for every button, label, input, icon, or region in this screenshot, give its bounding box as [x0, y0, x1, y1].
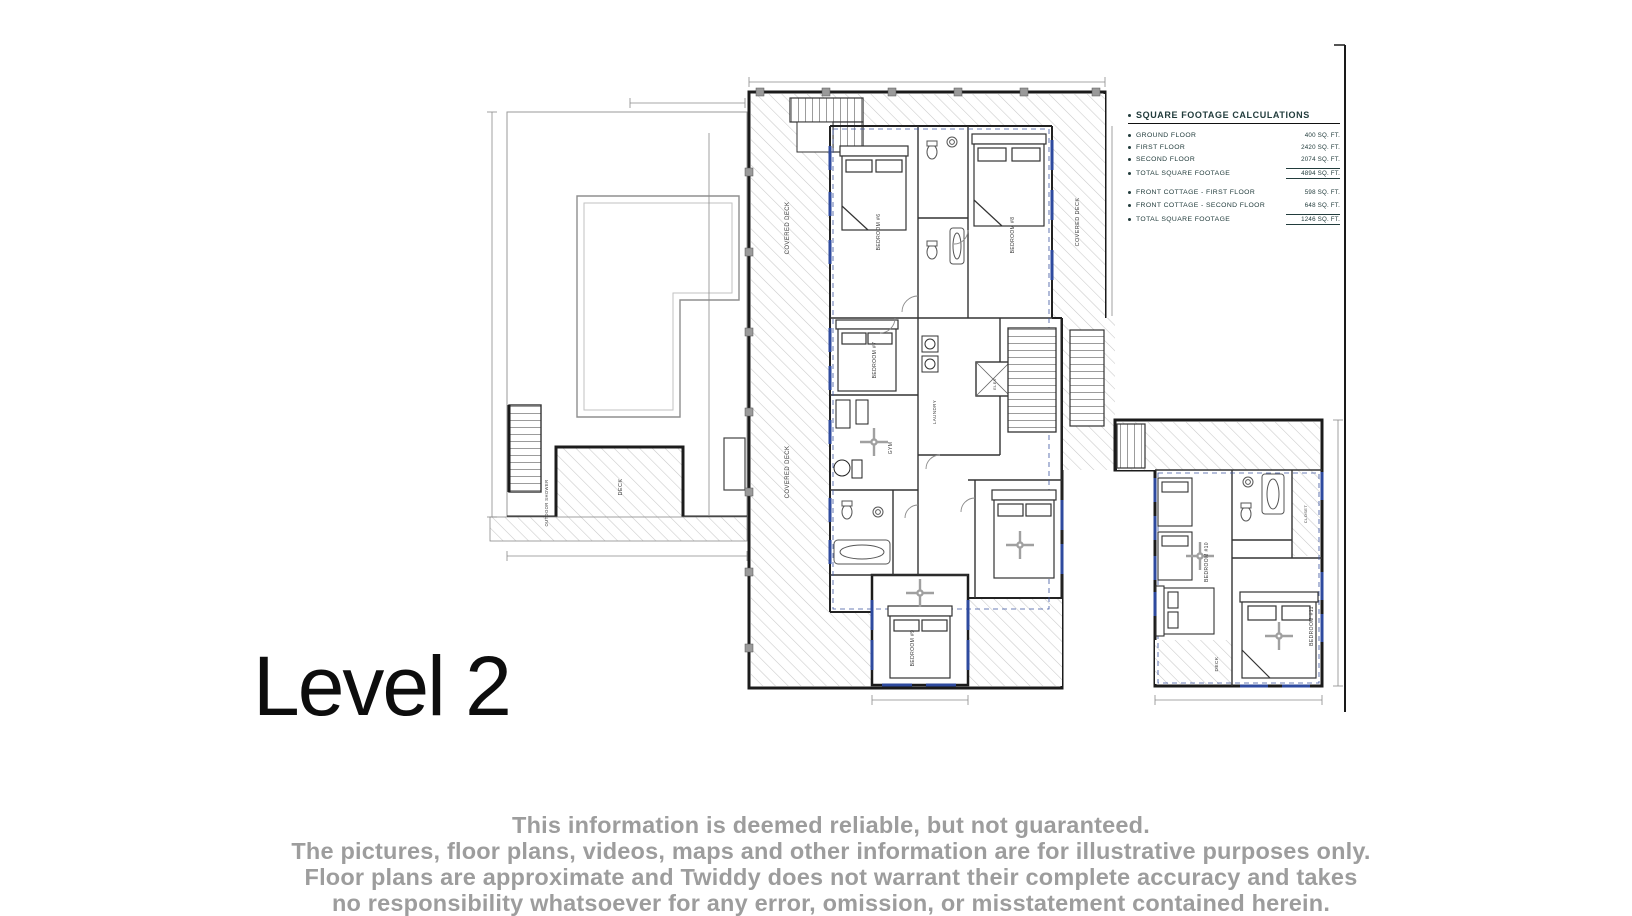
- bullet-icon: [1128, 218, 1131, 221]
- bench: [724, 438, 745, 490]
- bullet-icon: [1128, 172, 1131, 175]
- disclaimer-line: no responsibility whatsoever for any err…: [256, 890, 1406, 916]
- gym-label: GYM: [888, 442, 894, 455]
- cottage-entry-stairs: [1117, 424, 1145, 468]
- table-row: FIRST FLOOR 2420 SQ. FT.: [1128, 141, 1340, 153]
- page-title: Level 2: [253, 638, 510, 735]
- main-stairs: [1008, 328, 1056, 432]
- square-footage-table: SQUARE FOOTAGE CALCULATIONS GROUND FLOOR…: [1128, 110, 1340, 227]
- row-label: FIRST FLOOR: [1136, 144, 1281, 151]
- row-label: FRONT COTTAGE - SECOND FLOOR: [1136, 202, 1281, 209]
- table-row-total: TOTAL SQUARE FOOTAGE 1246 SQ. FT.: [1128, 211, 1340, 227]
- covered-deck-label-upper: COVERED DECK: [785, 202, 791, 255]
- outdoor-shower-label: OUTDOOR SHOWER: [544, 479, 549, 526]
- disclaimer-line: This information is deemed reliable, but…: [256, 812, 1406, 838]
- bullet-icon: [1128, 114, 1131, 117]
- row-label: TOTAL SQUARE FOOTAGE: [1136, 216, 1281, 223]
- row-value: 2420 SQ. FT.: [1286, 144, 1340, 151]
- row-label: FRONT COTTAGE - FIRST FLOOR: [1136, 189, 1281, 196]
- row-value: 2074 SQ. FT.: [1286, 156, 1340, 163]
- cottage-deck-label: DECK: [1214, 656, 1220, 671]
- row-value: 598 SQ. FT.: [1286, 189, 1340, 196]
- bedroom11-label: BEDROOM #11: [1309, 606, 1315, 646]
- connector-stairs: [1070, 330, 1104, 426]
- bullet-icon: [1128, 146, 1131, 149]
- bed-bedroom9: [888, 606, 952, 678]
- bullet-icon: [1128, 191, 1131, 194]
- row-value: 1246 SQ. FT.: [1286, 214, 1340, 225]
- cottage-closet-label: CLOSET: [1303, 505, 1308, 524]
- covered-deck-label-right: COVERED DECK: [1075, 198, 1081, 247]
- row-value: 648 SQ. FT.: [1286, 202, 1340, 209]
- table-row: FRONT COTTAGE - FIRST FLOOR 598 SQ. FT.: [1128, 187, 1340, 199]
- bedroom10-label: BEDROOM #10: [1204, 542, 1210, 582]
- bedroom7-label: BEDROOM #7: [872, 342, 878, 379]
- row-label: SECOND FLOOR: [1136, 156, 1281, 163]
- row-label: TOTAL SQUARE FOOTAGE: [1136, 170, 1281, 177]
- bullet-icon: [1128, 134, 1131, 137]
- elev-label: ELEV: [992, 378, 997, 390]
- deck-label: DECK: [618, 479, 624, 496]
- pool: [577, 196, 739, 417]
- row-value: 400 SQ. FT.: [1286, 132, 1340, 139]
- table-title: SQUARE FOOTAGE CALCULATIONS: [1136, 110, 1310, 120]
- disclaimer-line: The pictures, floor plans, videos, maps …: [256, 838, 1406, 864]
- covered-deck-label-lower: COVERED DECK: [785, 446, 791, 499]
- table-row: SECOND FLOOR 2074 SQ. FT.: [1128, 153, 1340, 165]
- floor-plan: DECK OUTDOOR SHOWER: [0, 0, 1632, 916]
- page: { "title": { "label": "Level 2" }, "sqft…: [0, 0, 1632, 916]
- bedroom9-label: BEDROOM #9: [910, 630, 916, 667]
- disclaimer: This information is deemed reliable, but…: [256, 812, 1406, 916]
- bedroom8-label: BEDROOM #8: [1010, 217, 1016, 254]
- table-row: GROUND FLOOR 400 SQ. FT.: [1128, 129, 1340, 141]
- row-label: GROUND FLOOR: [1136, 132, 1281, 139]
- disclaimer-line: Floor plans are approximate and Twiddy d…: [256, 864, 1406, 890]
- bed-bedroom8: [972, 134, 1046, 226]
- terrace-stairs: [509, 405, 541, 492]
- bedroom6-label: BEDROOM #6: [876, 214, 882, 251]
- bullet-icon: [1128, 204, 1131, 207]
- bed-bedroom-se: [992, 490, 1056, 578]
- pool-terrace: DECK OUTDOOR SHOWER: [490, 112, 747, 541]
- bed-bedroom6: [840, 146, 908, 230]
- laundry-label: LAUNDRY: [932, 400, 937, 424]
- table-row-total: TOTAL SQUARE FOOTAGE 4894 SQ. FT.: [1128, 166, 1340, 182]
- bullet-icon: [1128, 158, 1131, 161]
- table-row: FRONT COTTAGE - SECOND FLOOR 648 SQ. FT.: [1128, 199, 1340, 211]
- row-value: 4894 SQ. FT.: [1286, 168, 1340, 179]
- square-footage-table-header: SQUARE FOOTAGE CALCULATIONS: [1128, 110, 1340, 124]
- main-house: COVERED DECK COVERED DECK COVERED DECK B…: [745, 88, 1115, 688]
